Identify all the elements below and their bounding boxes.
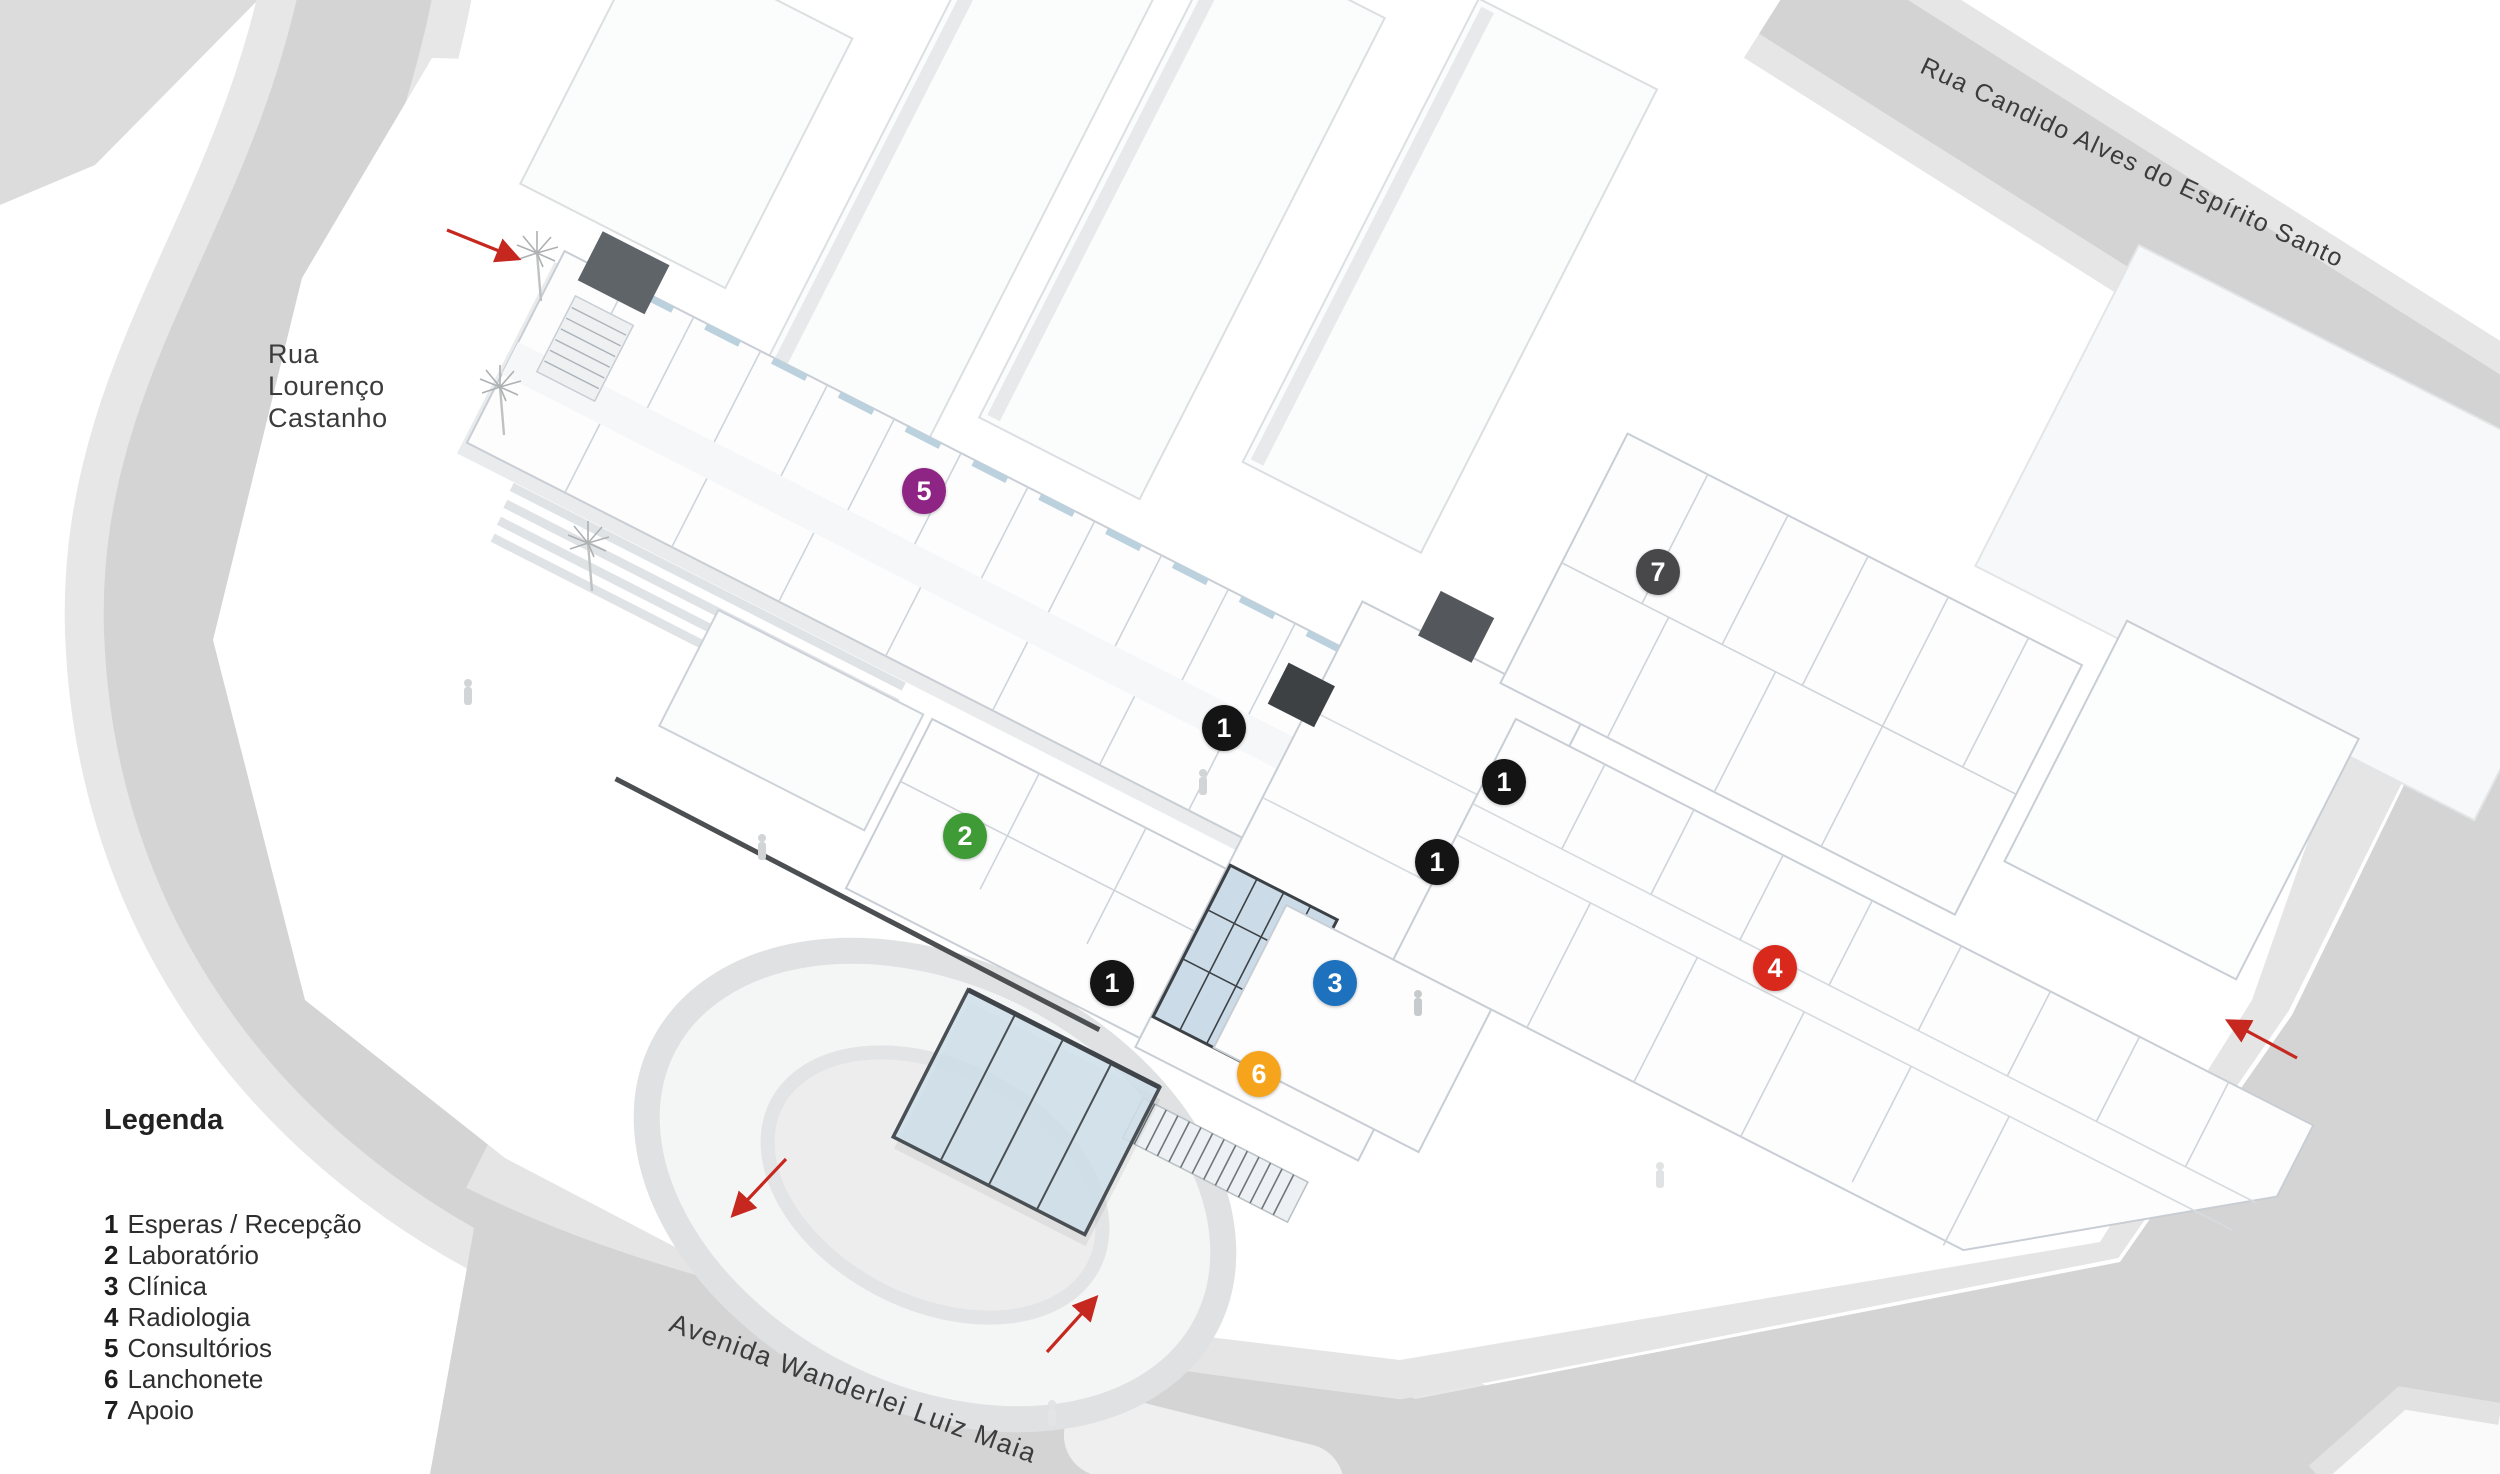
legend-item-7: 7Apoio xyxy=(104,1395,362,1426)
street-label-line: Lourenço xyxy=(268,370,388,402)
legend-item-1: 1Esperas / Recepção xyxy=(104,1209,362,1240)
legend-item-4: 4Radiologia xyxy=(104,1302,362,1333)
entrance-arrow xyxy=(2232,1023,2297,1058)
legend-title: Legenda xyxy=(104,1104,362,1137)
legend-item-3: 3Clínica xyxy=(104,1271,362,1302)
site-plan-stage: 5711121364 Rua Candido Alves do Espírito… xyxy=(0,0,2500,1474)
legend-items: 1Esperas / Recepção 2Laboratório 3Clínic… xyxy=(104,1209,362,1426)
entrance-arrow xyxy=(447,230,514,257)
street-label-line: Rua xyxy=(268,338,388,370)
entrance-arrow xyxy=(1047,1301,1093,1352)
legend-item-6: 6Lanchonete xyxy=(104,1364,362,1395)
legend: Legenda 1Esperas / Recepção 2Laboratório… xyxy=(104,1104,362,1426)
entrance-arrows-layer xyxy=(0,0,2500,1474)
legend-item-2: 2Laboratório xyxy=(104,1240,362,1271)
street-label-rua-lourenco-castanho: Rua Lourenço Castanho xyxy=(268,338,388,434)
legend-item-5: 5Consultórios xyxy=(104,1333,362,1364)
entrance-arrow xyxy=(736,1159,786,1212)
street-label-line: Castanho xyxy=(268,402,388,434)
